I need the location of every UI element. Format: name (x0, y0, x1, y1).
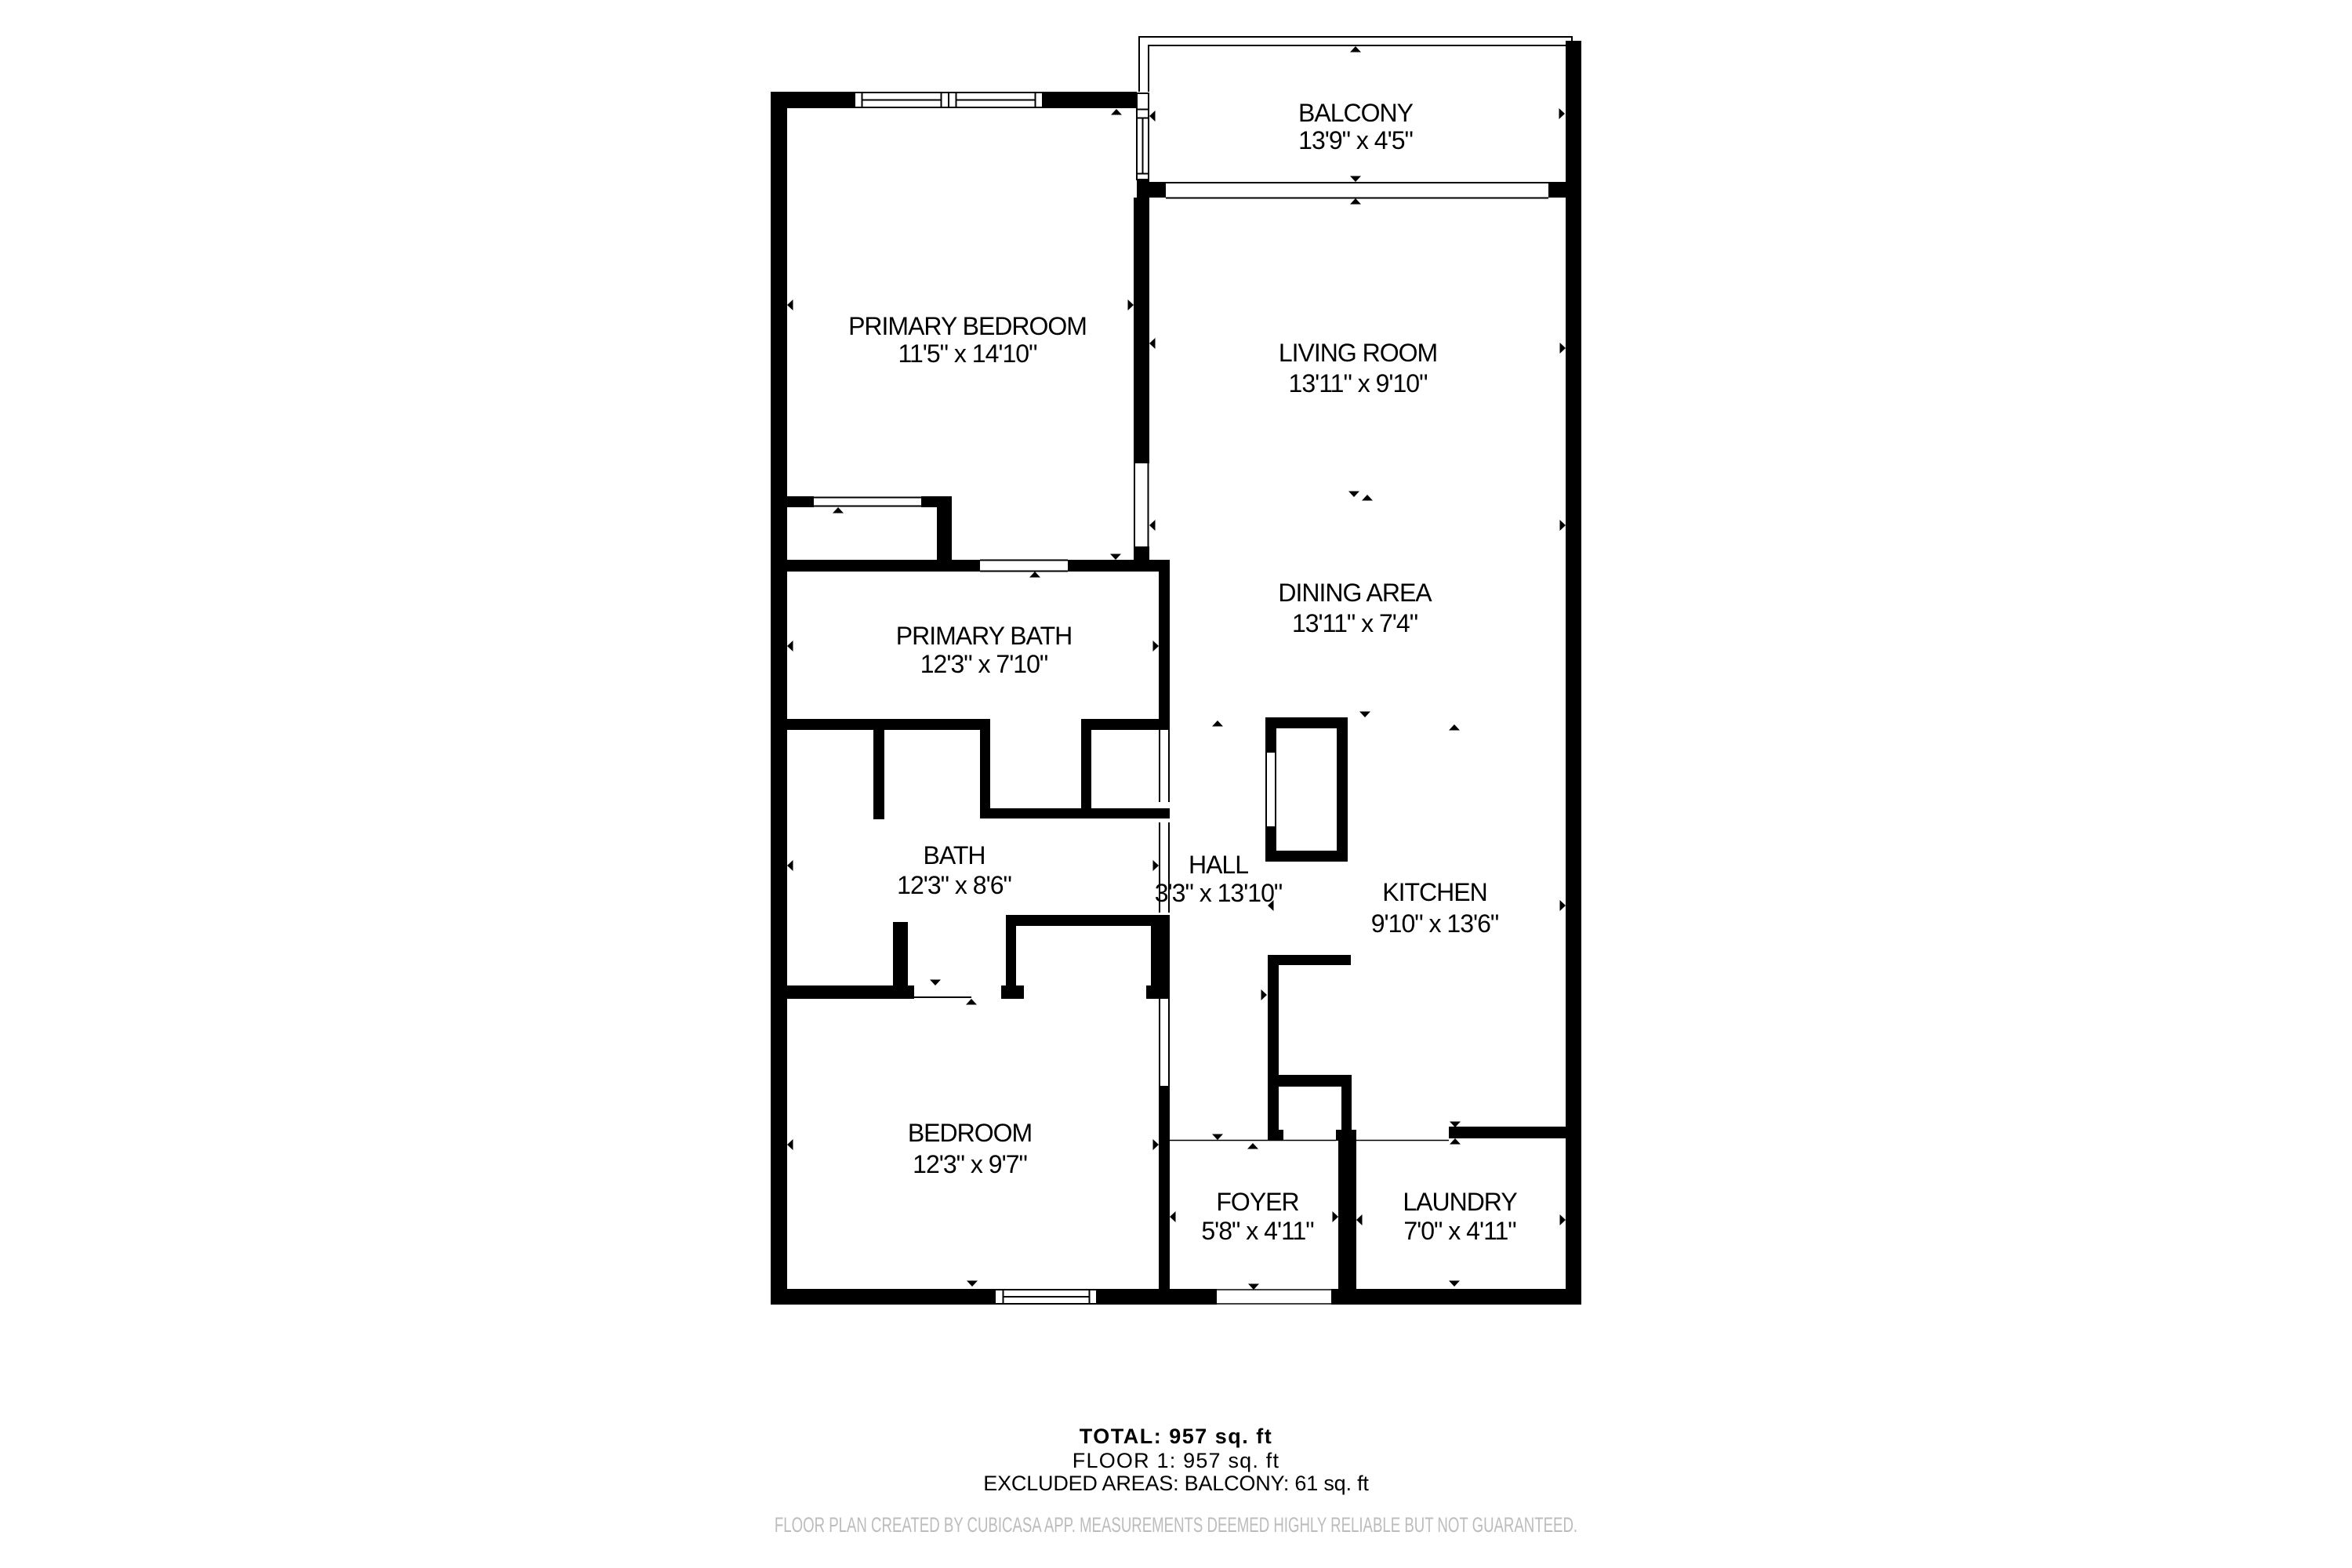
svg-text:LIVING ROOM: LIVING ROOM (1279, 339, 1437, 367)
svg-text:PRIMARY BEDROOM: PRIMARY BEDROOM (848, 312, 1087, 340)
svg-text:FLOOR 1: 957 sq. ft: FLOOR 1: 957 sq. ft (1073, 1449, 1279, 1472)
svg-text:7'0" x 4'11": 7'0" x 4'11" (1403, 1217, 1515, 1245)
svg-text:HALL: HALL (1189, 851, 1248, 879)
svg-text:5'8" x 4'11": 5'8" x 4'11" (1201, 1217, 1313, 1245)
svg-text:12'3" x 9'7": 12'3" x 9'7" (913, 1150, 1027, 1178)
svg-text:3'3" x 13'10": 3'3" x 13'10" (1155, 879, 1283, 907)
svg-text:DINING AREA: DINING AREA (1278, 579, 1432, 607)
svg-text:11'5" x 14'10": 11'5" x 14'10" (898, 339, 1037, 368)
svg-text:13'9" x 4'5": 13'9" x 4'5" (1298, 126, 1413, 154)
svg-text:12'3" x 8'6": 12'3" x 8'6" (897, 871, 1011, 899)
svg-text:BEDROOM: BEDROOM (908, 1119, 1032, 1147)
svg-text:PRIMARY BATH: PRIMARY BATH (896, 622, 1073, 650)
svg-text:EXCLUDED AREAS: BALCONY: 61 sq: EXCLUDED AREAS: BALCONY: 61 sq. ft (983, 1472, 1369, 1495)
svg-text:FOYER: FOYER (1216, 1188, 1298, 1216)
svg-text:9'10" x 13'6": 9'10" x 13'6" (1371, 909, 1499, 938)
svg-text:FLOOR PLAN CREATED BY CUBICASA: FLOOR PLAN CREATED BY CUBICASA APP. MEAS… (775, 1513, 1577, 1537)
svg-text:KITCHEN: KITCHEN (1382, 878, 1486, 906)
svg-text:13'11" x 7'4": 13'11" x 7'4" (1292, 609, 1417, 637)
svg-text:BATH: BATH (924, 841, 985, 869)
svg-text:LAUNDRY: LAUNDRY (1403, 1188, 1517, 1216)
svg-text:12'3" x 7'10": 12'3" x 7'10" (920, 650, 1048, 678)
svg-text:BALCONY: BALCONY (1298, 99, 1414, 127)
svg-text:13'11" x 9'10": 13'11" x 9'10" (1289, 369, 1428, 397)
svg-text:TOTAL: 957 sq. ft: TOTAL: 957 sq. ft (1080, 1425, 1273, 1448)
